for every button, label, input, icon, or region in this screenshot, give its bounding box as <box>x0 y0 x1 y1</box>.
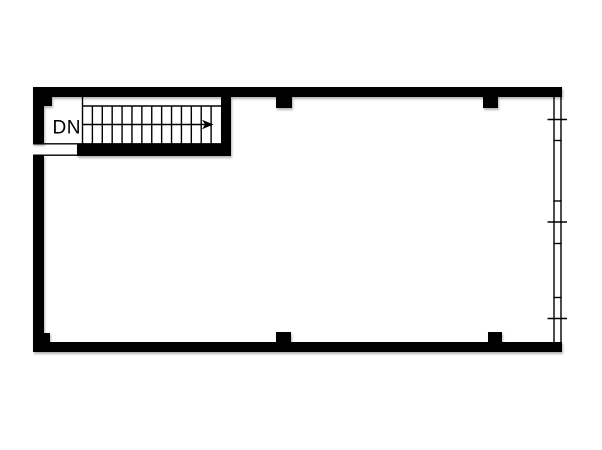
staircase: DN <box>53 97 222 144</box>
stair-east-wall <box>221 97 231 156</box>
column-marker-bottom-left <box>33 333 50 352</box>
column-marker-top-left <box>33 87 52 106</box>
stair-south-wall <box>77 144 231 156</box>
column-marker-top-right <box>483 97 498 108</box>
column-marker-bottom-middle <box>276 332 291 342</box>
floor-plan-drawing: DN <box>0 0 602 450</box>
stair-direction-label: DN <box>53 118 81 139</box>
bottom-wall <box>33 342 562 352</box>
column-marker-top-middle <box>276 97 292 108</box>
top-wall <box>33 87 562 97</box>
window-major-ticks <box>548 120 568 319</box>
left-wall-lower <box>33 155 44 352</box>
window-wall <box>548 97 568 342</box>
floor-plan-canvas: DN <box>0 0 602 450</box>
column-marker-bottom-right <box>488 332 502 342</box>
